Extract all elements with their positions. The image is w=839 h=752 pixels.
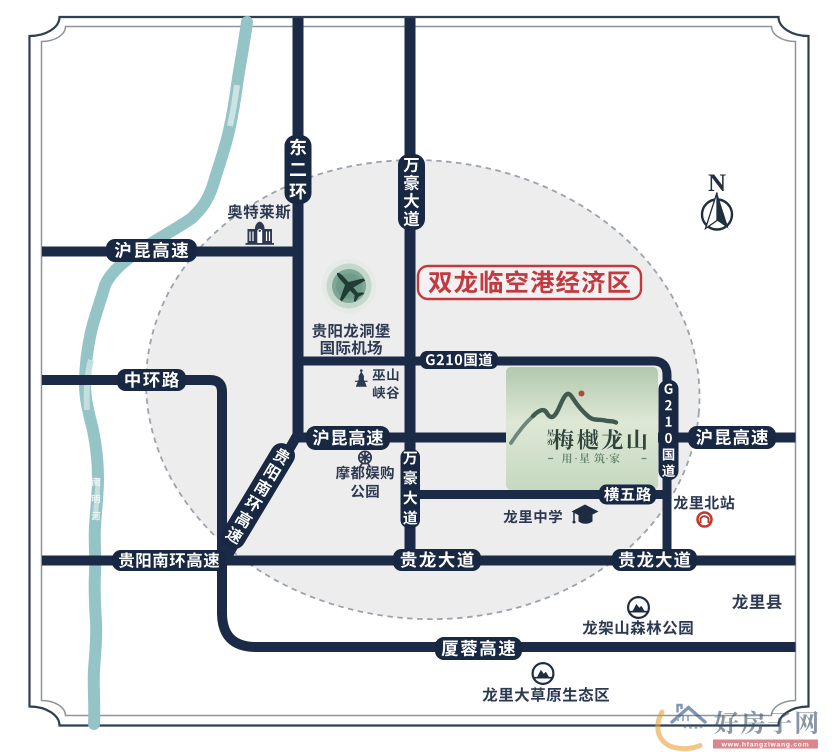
svg-text:www.hfangziwang.com: www.hfangziwang.com [721,742,810,749]
